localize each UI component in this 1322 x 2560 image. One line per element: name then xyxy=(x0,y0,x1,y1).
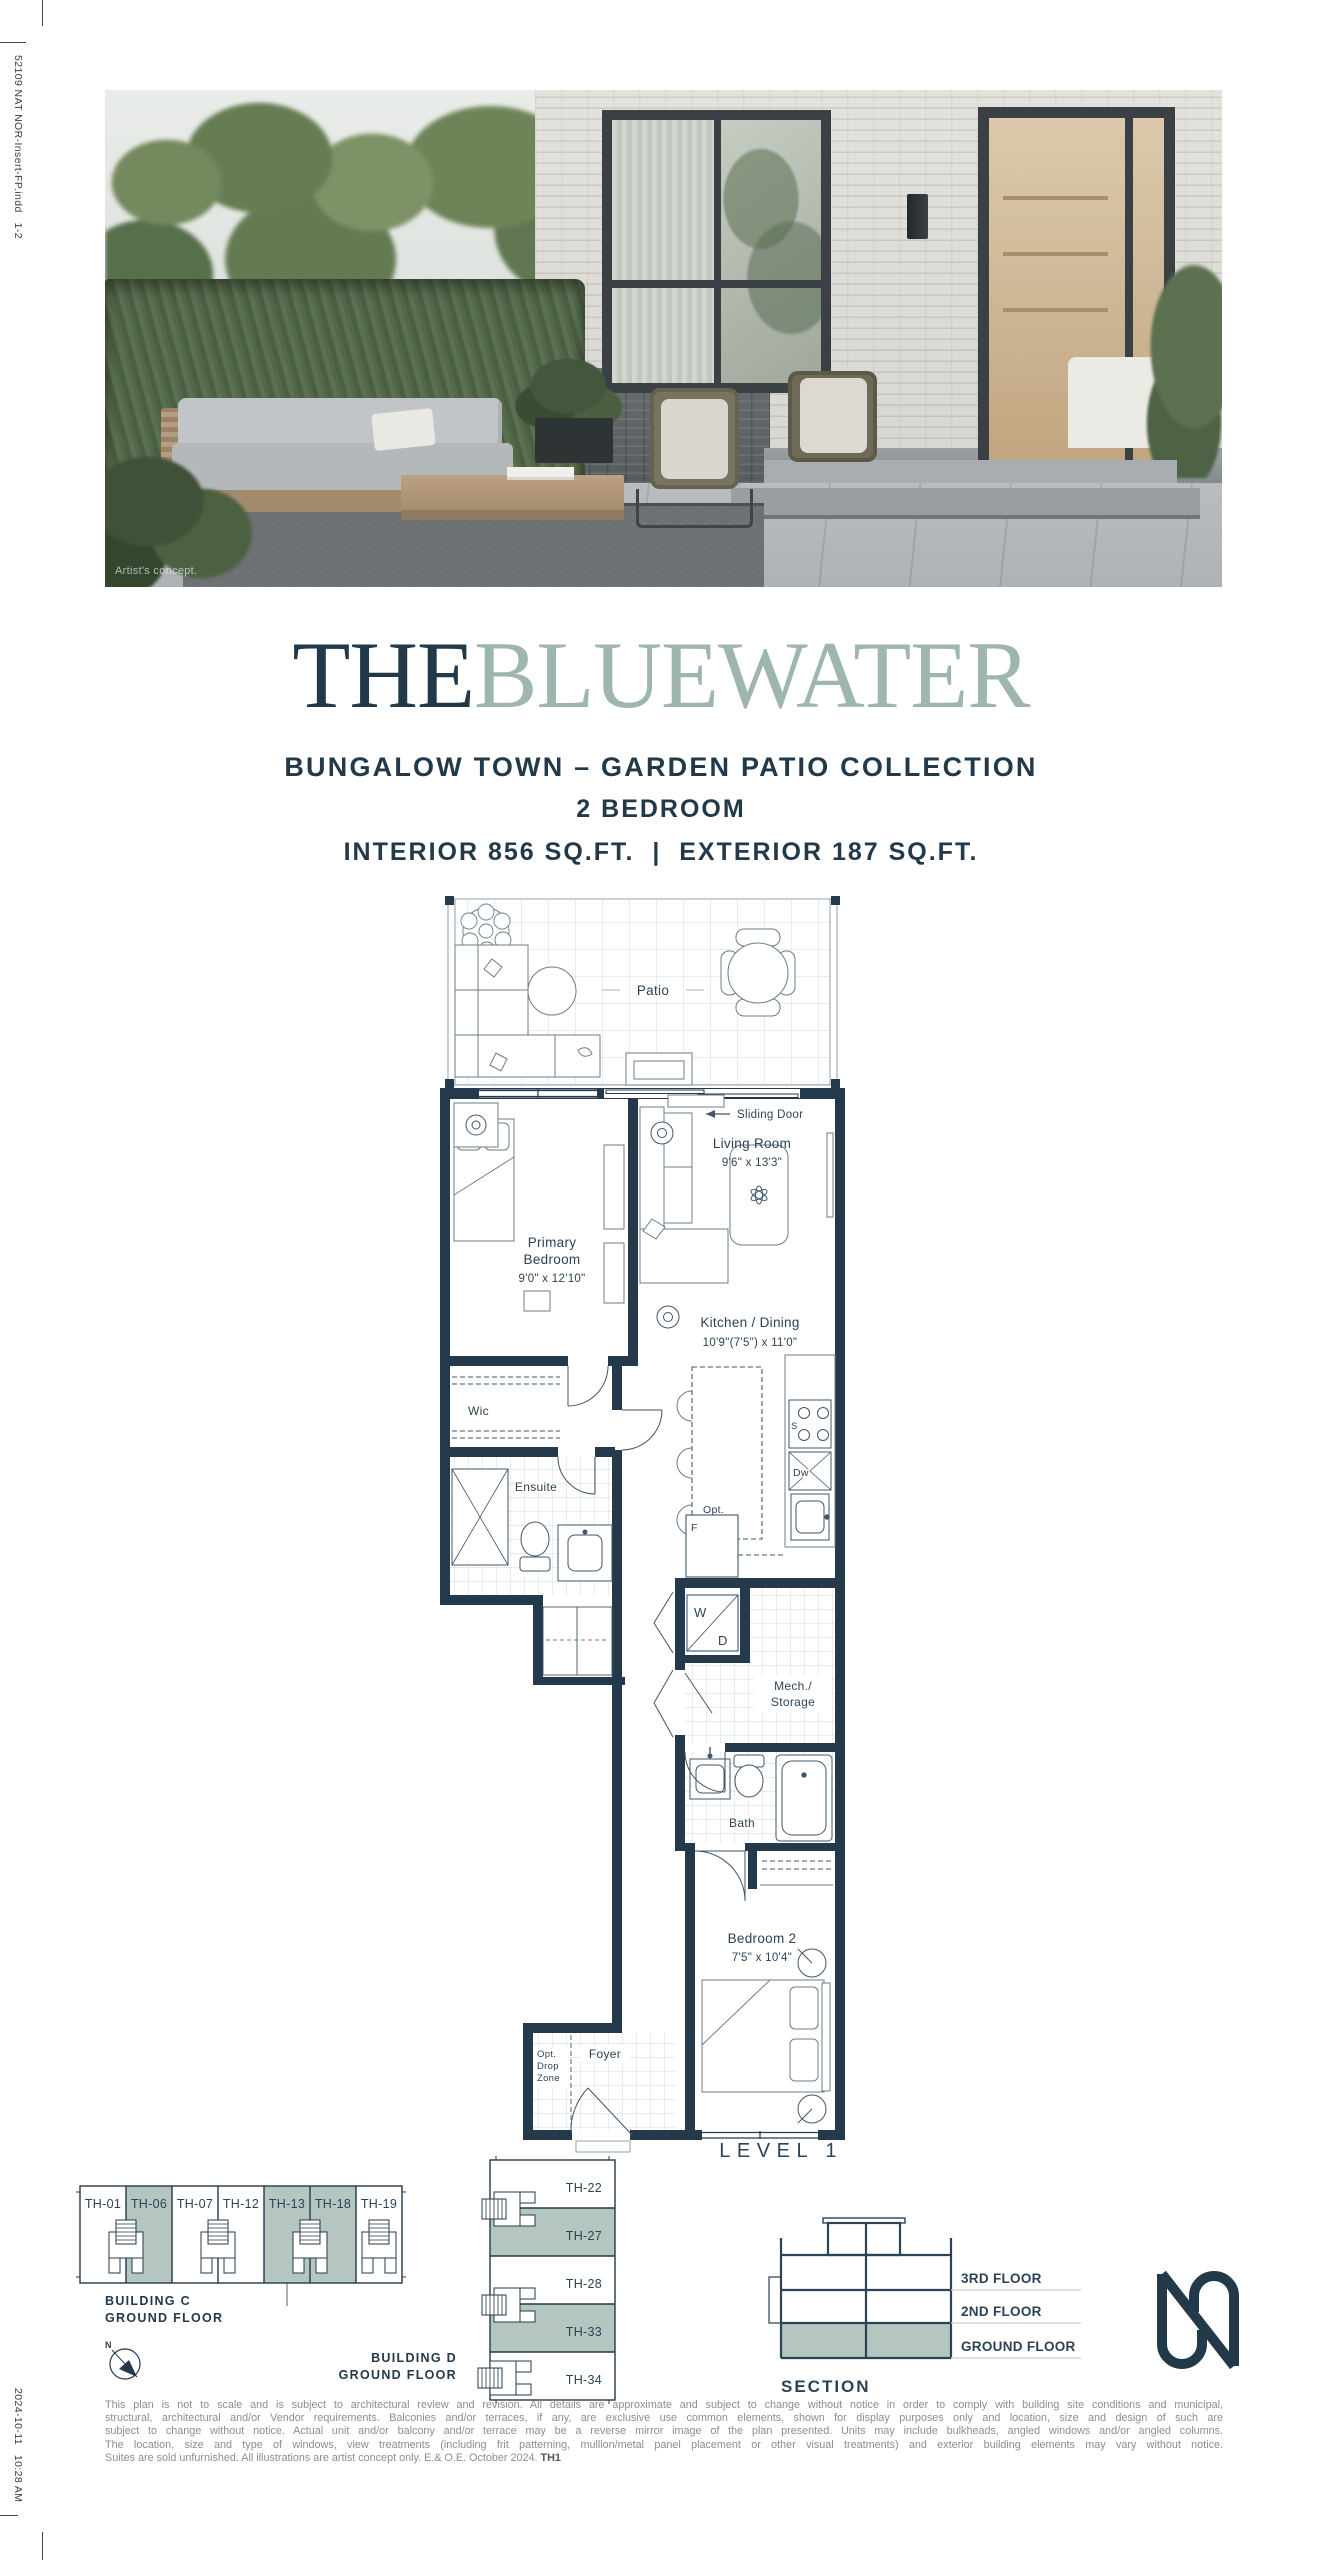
disclaimer-line: The location, size and type of windows, … xyxy=(105,2439,1223,2452)
unit-label: TH-27 xyxy=(566,2229,602,2243)
unit-label: TH-18 xyxy=(315,2197,351,2211)
living-room-label: Living Room xyxy=(713,1136,791,1151)
mech-label-2: Storage xyxy=(771,1695,815,1709)
unit-label: TH-19 xyxy=(361,2197,397,2211)
primary-bedroom-label-1: Primary xyxy=(528,1235,577,1250)
living-sofa-icon xyxy=(640,1095,728,1283)
window xyxy=(602,110,831,393)
outdoor-chair xyxy=(770,371,898,485)
brand-title-bluewater: BLUEWATER xyxy=(474,622,1030,728)
bedroom2-window xyxy=(702,2131,818,2139)
sliding-door-label: Sliding Door xyxy=(737,1109,803,1121)
patio-area: Patio xyxy=(445,896,840,1088)
hall-door-arc xyxy=(622,1410,662,1450)
building-c-label: BUILDING C GROUND FLOOR xyxy=(105,2293,223,2327)
window-transom-bar xyxy=(612,280,821,288)
floor-label-ground: GROUND FLOOR xyxy=(961,2339,1076,2354)
bath-label: Bath xyxy=(729,1816,755,1830)
fridge-icon: F xyxy=(686,1515,738,1577)
ensuite: Ensuite xyxy=(450,1457,612,1595)
unit-label: TH-01 xyxy=(85,2197,121,2211)
primary-bedroom-label-2: Bedroom xyxy=(524,1252,581,1267)
disclaimer-line: This plan is not to scale and is subject… xyxy=(105,2399,1223,2412)
chair-cushion xyxy=(800,378,867,453)
ceiling-light-icon xyxy=(651,1122,673,1144)
unit-label: TH-13 xyxy=(269,2197,305,2211)
floor-label-2nd: 2ND FLOOR xyxy=(961,2304,1042,2319)
hero-photo: Artist's concept. xyxy=(105,90,1222,587)
coffee-table xyxy=(401,475,624,510)
foyer-label: Foyer xyxy=(589,2047,621,2061)
dropzone-label-1: Opt. xyxy=(537,2049,556,2060)
print-slug-timestamp: 2024-10-11 10:28 AM xyxy=(12,2388,24,2502)
bedroom2: Bedroom 2 7'5" x 10'4" xyxy=(695,1851,833,2139)
fridge-label: F xyxy=(691,1522,698,1534)
unit-label: TH-06 xyxy=(131,2197,167,2211)
unit-label: TH-22 xyxy=(566,2181,602,2195)
unit-label: TH-28 xyxy=(566,2277,602,2291)
kitchen-dining: Kitchen / Dining 10'9"(7'5") x 11'0" Opt… xyxy=(657,1306,835,1577)
outdoor-chair xyxy=(624,388,764,517)
disclaimer-line-last: Suites are sold unfurnished. All illustr… xyxy=(105,2452,1223,2465)
sliding-door-callout: Sliding Door xyxy=(706,1109,803,1121)
interior-shelf xyxy=(1003,196,1108,200)
disclaimer-line: structural, architectural and/or Vendor … xyxy=(105,2412,1223,2425)
building-c-label-line1: BUILDING C xyxy=(105,2293,223,2310)
shower-icon xyxy=(452,1469,508,1565)
area-subtitle: INTERIOR 856 SQ.FT. | EXTERIOR 187 SQ.FT… xyxy=(0,838,1322,867)
ceiling-light-icon xyxy=(454,1103,498,1147)
living-room: Living Room 9'6" x 13'3" xyxy=(640,1095,833,1283)
photo-caption: Artist's concept. xyxy=(115,565,197,577)
brand-title: THEBLUEWATER xyxy=(0,628,1322,723)
collection-subtitle: BUNGALOW TOWN – GARDEN PATIO COLLECTION xyxy=(0,752,1322,783)
compass: N xyxy=(100,2336,148,2386)
kitchen-sink-icon xyxy=(791,1494,829,1540)
corridor-closet xyxy=(543,1607,612,1675)
interior-shelf xyxy=(1003,308,1108,312)
stove-label: S xyxy=(791,1421,798,1432)
crop-mark-bottom-vertical xyxy=(42,2532,43,2560)
planter-pot xyxy=(535,418,613,463)
bathroom: Bath xyxy=(685,1747,835,1843)
building-c-label-line2: GROUND FLOOR xyxy=(105,2310,223,2327)
floor-label-3rd: 3RD FLOOR xyxy=(961,2271,1042,2286)
patio-planter-icon xyxy=(626,1053,692,1085)
laundry-closet: W D xyxy=(654,1592,738,1653)
tv-console-icon xyxy=(827,1133,833,1217)
vanity-sink-icon xyxy=(558,1525,612,1581)
level-label: LEVEL 1 xyxy=(719,2140,843,2162)
unit-labels: TH-01 TH-06 TH-07 TH-12 TH-13 TH-18 TH-1… xyxy=(85,2197,397,2211)
wic-room: Wic xyxy=(452,1366,608,1438)
primary-bedroom: Primary Bedroom 9'0" x 12'10" xyxy=(454,1103,624,1311)
opt-island-label-1: Opt. xyxy=(703,1504,724,1516)
sofa-pillow xyxy=(371,407,436,450)
disclaimer-last-text: Suites are sold unfurnished. All illustr… xyxy=(105,2452,538,2464)
bedroom-subtitle: 2 BEDROOM xyxy=(0,795,1322,824)
dishwasher-icon: Dw xyxy=(789,1452,831,1490)
dropzone-label-3: Zone xyxy=(537,2073,560,2084)
patio-side-table-icon xyxy=(528,967,576,1015)
kitchen-dims: 10'9"(7'5") x 11'0" xyxy=(703,1337,798,1349)
floor-labels: 3RD FLOOR 2ND FLOOR GROUND FLOOR xyxy=(961,2271,1076,2354)
builder-logo-ns xyxy=(1146,2266,1250,2374)
dropzone-label-2: Drop xyxy=(537,2061,559,2072)
window-reflection-pane xyxy=(721,120,821,383)
building-d-label-line2: GROUND FLOOR xyxy=(295,2367,457,2384)
brand-title-the: THE xyxy=(292,622,474,728)
plan-code: TH1 xyxy=(541,2452,561,2464)
print-slug-filename: 52109 NAT NOR-Insert-FP.indd 1-2 xyxy=(12,55,24,239)
keyplan-building-d: TH-22 TH-27 TH-28 TH-33 TH-34 xyxy=(468,2152,655,2404)
patio-label: Patio xyxy=(637,983,669,998)
wall-sconce xyxy=(907,194,928,239)
interior-shelf xyxy=(1003,252,1108,256)
keyplan-building-c: TH-01 TH-06 TH-07 TH-12 TH-13 TH-18 TH-1… xyxy=(72,2178,422,2310)
section-diagram: 3RD FLOOR 2ND FLOOR GROUND FLOOR SECTION xyxy=(758,2212,1178,2412)
section-label: SECTION xyxy=(781,2377,871,2396)
dishwasher-label: Dw xyxy=(793,1467,809,1479)
optional-island-icon: Opt. Island xyxy=(677,1367,762,1539)
mech-label-1: Mech./ xyxy=(774,1679,812,1693)
table-books xyxy=(507,467,574,477)
disclaimer-line: subject to change without notice. Actual… xyxy=(105,2425,1223,2438)
window-blinds-pane xyxy=(612,120,721,383)
compass-north-label: N xyxy=(105,2340,112,2350)
patio-step-lower xyxy=(731,488,1200,515)
wardrobe-icon xyxy=(604,1145,624,1303)
living-room-dims: 9'6" x 13'3" xyxy=(722,1157,782,1169)
crop-mark-bottom-horizontal xyxy=(0,2515,18,2516)
stove-icon: S xyxy=(789,1400,831,1448)
bedroom2-dims: 7'5" x 10'4" xyxy=(732,1952,792,1964)
bed-icon xyxy=(702,1980,830,2092)
crop-mark-top-horizontal xyxy=(0,42,26,43)
toilet-icon xyxy=(734,1755,764,1797)
unit-label: TH-33 xyxy=(566,2325,602,2339)
building-d-label: BUILDING D GROUND FLOOR xyxy=(295,2350,457,2384)
floorplan-level1: Patio xyxy=(440,895,845,2163)
unit-label: TH-12 xyxy=(223,2197,259,2211)
crop-mark-top-vertical xyxy=(42,0,43,26)
ensuite-label: Ensuite xyxy=(515,1480,557,1494)
primary-bedroom-window xyxy=(479,1088,597,1099)
primary-bedroom-dims: 9'0" x 12'10" xyxy=(519,1273,586,1285)
washer-label: W xyxy=(694,1605,707,1620)
toilet-icon xyxy=(520,1522,550,1571)
kitchen-label: Kitchen / Dining xyxy=(700,1315,799,1330)
dryer-label: D xyxy=(718,1633,728,1648)
disclaimer: This plan is not to scale and is subject… xyxy=(105,2399,1223,2465)
building-d-label-line1: BUILDING D xyxy=(295,2350,457,2367)
bathtub-icon xyxy=(776,1755,832,1841)
wic-label: Wic xyxy=(468,1404,489,1418)
unit-label: TH-34 xyxy=(566,2373,602,2387)
chair-cushion xyxy=(661,399,728,479)
right-foliage xyxy=(1144,259,1222,478)
ceiling-light-icon xyxy=(657,1306,679,1328)
chair-legs xyxy=(636,489,753,528)
bedroom2-label: Bedroom 2 xyxy=(728,1931,797,1946)
unit-label: TH-07 xyxy=(177,2197,213,2211)
